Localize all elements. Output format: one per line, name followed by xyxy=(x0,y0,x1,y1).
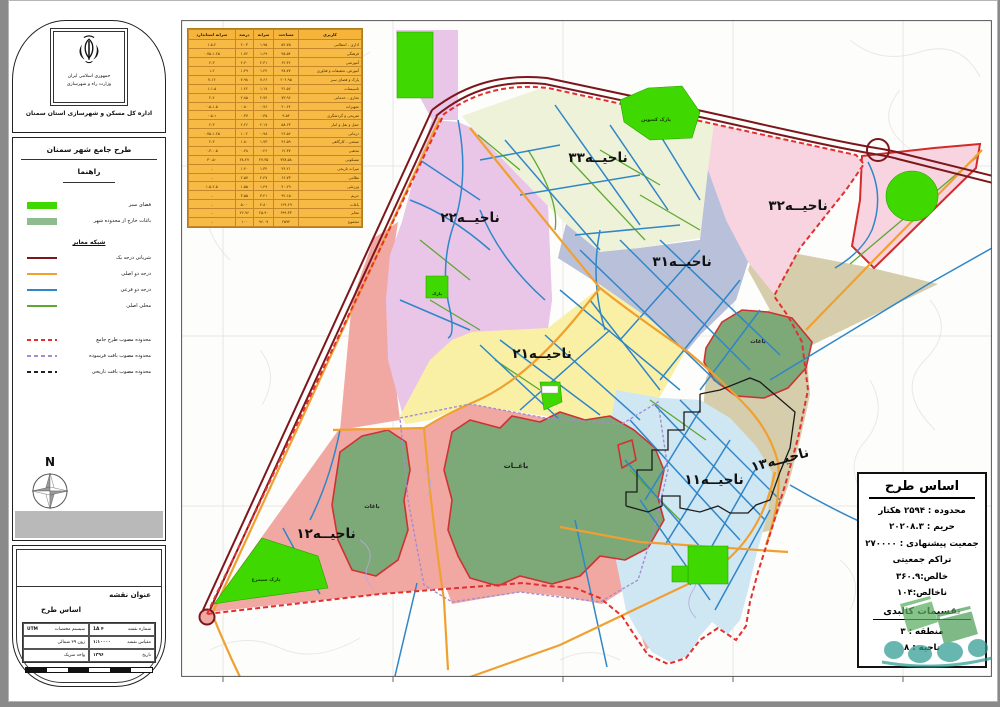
district-32-label: ناحیــه۳۲ xyxy=(768,198,827,214)
green-space-swatch xyxy=(27,202,57,209)
landuse-row: حریم۹۲.۱۵۳.۴۱۳.۵۵- xyxy=(189,191,362,200)
landuse-row: تجهیزات۲۰.۶۴۰.۷۶۰.۸۰۰.۵-۱.۵ xyxy=(189,102,362,111)
landuse-row: ورزشی۴۰.۲۹۱.۴۹۱.۵۵۱.۵-۲.۵ xyxy=(189,182,362,191)
infobox-division-line: منطقه : ۳ xyxy=(859,627,985,637)
landuse-row: نظامی۶۶.۷۳۲.۴۷۲.۵۷- xyxy=(189,173,362,182)
worn-fabric-boundary-swatch xyxy=(27,355,57,358)
park-small-label: پارک xyxy=(432,291,442,296)
landuse-row: آموزش، تحقیقات و فناوری۳۸.۷۷۱.۴۴۱.۴۹۱-۲ xyxy=(189,67,362,76)
map-title-heading: عنوان نقشه xyxy=(109,591,151,599)
landuse-header: درصد xyxy=(235,30,253,40)
park-label-chip xyxy=(542,386,558,393)
scale-cell: مقیاس نقشه۱:۱۰۰۰۰ xyxy=(89,636,155,649)
divider xyxy=(21,159,157,160)
map-title-value: اساس طرح xyxy=(41,606,81,614)
divider xyxy=(63,182,115,183)
district-11-label: ناحیــه۱۱ xyxy=(684,472,743,488)
infobox-line: خالص:۳۶۰.۹ xyxy=(859,572,985,582)
landuse-row: میراث تاریخی۳۶.۲۱۱.۳۴۱.۴۰- xyxy=(189,164,362,173)
district-31-label: ناحیــه۳۱ xyxy=(652,254,711,270)
grade2-main-line-swatch xyxy=(27,273,57,276)
svg-text:N: N xyxy=(45,455,55,469)
landuse-header: مساحت xyxy=(274,30,299,40)
divider xyxy=(869,497,975,499)
local-main-line-swatch xyxy=(27,305,57,308)
grid-ticks xyxy=(223,677,903,682)
district-22-label: ناحیــه۲۲ xyxy=(440,210,499,226)
agency-line1: جمهوری اسلامی ایران xyxy=(54,73,124,81)
legend-box: طرح جامع شهر سمنان راهنما فضای سبز باغات… xyxy=(12,137,166,541)
park-in-11-small xyxy=(672,566,688,582)
plan-basis-infobox: اساس طرح محدوده : ۲۵۹۴ هکتار حریم : ۲۰۲۰… xyxy=(857,472,987,668)
district-33-label: ناحیــه۳۳ xyxy=(568,150,627,166)
legend-item-grade2-main: درجه دو اصلی xyxy=(13,266,165,282)
sheet-number-cell: شماره نقشه۴ 1A xyxy=(89,623,155,636)
coord-system-cell: سیستم مختصاتUTM xyxy=(23,623,89,636)
gardens-central-label: باغــات xyxy=(504,462,529,470)
arterial-line-swatch xyxy=(27,257,57,260)
landuse-row: باغات۱۲۹.۶۹۴.۸۰۵.۰۰- xyxy=(189,200,362,209)
north-arrow-icon: N xyxy=(27,454,73,514)
date-cell: تاریخ۱۳۹۶ xyxy=(89,649,155,662)
landuse-row: تجاری - خدماتی۷۳.۹۶۲.۷۴۲.۸۵۲-۴ xyxy=(189,93,362,102)
landuse-row: تاسیسات۳۱.۵۶۱.۱۷۱.۲۲۱-۱.۵ xyxy=(189,84,362,93)
agency-line2: وزارت راه و شهرسازی xyxy=(54,81,124,89)
landuse-row: معابر۶۹۹.۳۳۲۵.۹۰۲۶.۹۶- xyxy=(189,209,362,218)
legend-item-gardens-outside: باغات خارج از محدوده شهر xyxy=(13,213,165,229)
iran-emblem-icon xyxy=(72,35,106,69)
legend-title: طرح جامع شهر سمنان xyxy=(13,145,165,154)
landuse-row: حمل و نقل و انبار۵۸.۶۳۲.۱۷۲.۲۶۲-۳ xyxy=(189,120,362,129)
legend-roads-header: شبکه معابر xyxy=(13,239,165,246)
landuse-row: مجموع۲۵۹۴۹۶.۰۷۱۰۰- xyxy=(189,217,362,226)
legend-item-arterial1: شریانی درجه یک xyxy=(13,250,165,266)
landuse-row: صنعتی - کارگاهی۴۶.۵۹۱.۷۳۱.۸۰۲-۳ xyxy=(189,138,362,147)
landuse-table: کاربریمساحتسرانهدرصدسرانه استاندارداداری… xyxy=(187,28,363,228)
historic-fabric-boundary-swatch xyxy=(27,371,57,374)
infobox-line: تراکم جمعیتی xyxy=(859,555,985,565)
landuse-row: مذهبی۱۲.۳۷۰.۴۶۰.۴۸۰.۳-۰.۵ xyxy=(189,146,362,155)
map-sheet: جمهوری اسلامی ایران وزارت راه و شهرسازی … xyxy=(0,0,1000,707)
legend-subtitle: راهنما xyxy=(13,167,165,176)
landuse-row: آموزشی۶۲.۳۶۲.۳۱۲.۴۰۲-۳ xyxy=(189,58,362,67)
landuse-header: کاربری xyxy=(298,30,361,40)
infobox-line: محدوده : ۲۵۹۴ هکتار xyxy=(859,506,985,516)
legend-item-worn-fabric-boundary: محدوده مصوب بافت فرسوده xyxy=(13,348,165,364)
emblem-frame: جمهوری اسلامی ایران وزارت راه و شهرسازی xyxy=(53,31,125,103)
legend-item-local-main: محلی اصلی xyxy=(13,298,165,314)
district-12-label: ناحیــه۱۲ xyxy=(296,526,355,542)
park-kosvin-label: پارک کسوین xyxy=(641,116,671,123)
infobox-divisions-header: تقسیمات کالبدی xyxy=(859,606,985,617)
gardens-west-label: باغات xyxy=(364,504,379,510)
landuse-row: پارک و فضای سبز۲۰۶.۹۵۷.۶۶۷.۹۸۷-۱۲ xyxy=(189,75,362,84)
landuse-row: مسکونی۷۳۸.۵۸۲۷.۳۵۲۸.۴۷۳۰-۵۰ xyxy=(189,155,362,164)
park-top-strip xyxy=(397,32,433,98)
divider xyxy=(17,586,161,587)
gardens-east-label: باغات xyxy=(750,339,765,345)
park-simorgh-label: پارک سیمرغ xyxy=(251,576,280,583)
park-east-circle xyxy=(886,171,938,221)
legend-item-grade2-sub: درجه دو فرعی xyxy=(13,282,165,298)
agency-logo-box: جمهوری اسلامی ایران وزارت راه و شهرسازی … xyxy=(12,20,166,133)
park-in-11 xyxy=(688,546,728,584)
plan-boundary-swatch xyxy=(27,339,57,342)
zone-cell: زون ۳۹ شمالی xyxy=(23,636,89,649)
title-block-table: شماره نقشه۴ 1A سیستم مختصاتUTM مقیاس نقش… xyxy=(22,622,156,663)
unit-cell: واحد متریک xyxy=(23,649,89,662)
agency-line3: اداره کل مسکن و شهرسازی استان سمنان xyxy=(13,110,165,117)
grade2-sub-line-swatch xyxy=(27,289,57,292)
gardens-west-area xyxy=(332,430,410,576)
landuse-row: اداری - انتظامی۵۲.۷۵۱.۹۵۲.۰۳۱.۵-۲ xyxy=(189,40,362,49)
title-block-inner-frame: عنوان نقشه اساس طرح شماره نقشه۴ 1A سیستم… xyxy=(16,549,162,683)
landuse-row: فرهنگی۴۵.۵۴۱.۶۹۱.۷۶۰.۷۵-۱.۲۵ xyxy=(189,49,362,58)
district-21-label: ناحیــه۲۱ xyxy=(512,346,571,362)
infobox-line: ناخالص:۱۰۴ xyxy=(859,588,985,598)
legend-gray-bar xyxy=(15,511,163,538)
legend-item-plan-boundary: محدوده مصوب طرح جامع xyxy=(13,332,165,348)
divider xyxy=(873,619,971,620)
title-block: عنوان نقشه اساس طرح شماره نقشه۴ 1A سیستم… xyxy=(12,545,166,687)
infobox-line: حریم : ۲۰۲۰۸.۳ xyxy=(859,522,985,532)
infobox-line: جمعیت پیشنهادی : ۲۷۰۰۰۰ xyxy=(859,539,985,549)
landuse-header: سرانه xyxy=(254,30,274,40)
landuse-row: درمانی۲۶.۵۶۰.۹۸۱.۰۲۰.۷۵-۱.۲۵ xyxy=(189,129,362,138)
scale-bar xyxy=(25,667,153,673)
landuse-header-row: کاربریمساحتسرانهدرصدسرانه استاندارد xyxy=(189,30,362,40)
legend-item-historic-fabric-boundary: محدوده مصوب بافت تاریخی xyxy=(13,364,165,380)
legend-item-green-space: فضای سبز xyxy=(13,197,165,213)
landuse-header: سرانه استاندارد xyxy=(189,30,236,40)
landuse-row: تفریحی و گردشگری۹.۵۴۰.۳۵۰.۳۷۰.۵-۱ xyxy=(189,111,362,120)
infobox-division-line: ناحیه : ۸ xyxy=(859,643,985,653)
infobox-title: اساس طرح xyxy=(859,479,985,494)
gardens-swatch xyxy=(27,218,57,225)
